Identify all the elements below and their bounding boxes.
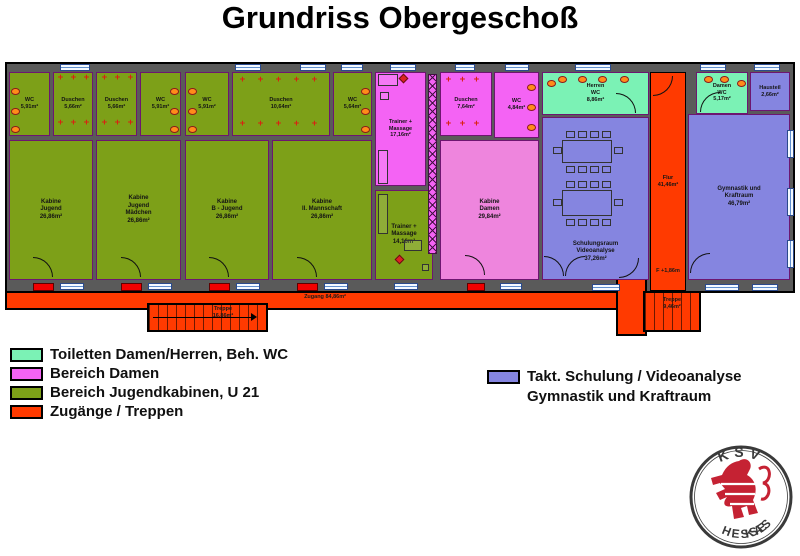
room-kabine-b-jugend: Kabine B - Jugend 26,86m² (185, 140, 269, 280)
floor-plan: WC 5,91m² Duschen 5,66m² Duschen 5,66m² … (0, 0, 800, 556)
window-icon (500, 283, 522, 290)
legend-label: Zugänge / Treppen (50, 403, 183, 420)
toilet-icon (737, 80, 746, 87)
shower-icon (292, 120, 301, 129)
window-icon (324, 283, 348, 290)
room-label: Hausteil 2,66m² (759, 85, 780, 99)
chair-icon (602, 166, 611, 173)
door-threshold (467, 283, 485, 291)
room-label: Trainer + Massage 17,16m² (389, 119, 412, 140)
room-kabine-2-mannschaft: Kabine II. Mannschaft 26,86m² (272, 140, 372, 280)
chair-icon (578, 219, 587, 226)
chair-icon (590, 181, 599, 188)
shower-icon (444, 120, 453, 129)
legend-swatch-olive (10, 386, 43, 400)
club-logo: KSV HESSEN KASSEL (685, 441, 797, 553)
shower-icon (310, 120, 319, 129)
chair-icon (614, 147, 623, 154)
shower-icon (113, 119, 122, 128)
chair-icon (566, 219, 575, 226)
door-threshold (209, 283, 230, 291)
conference-table (562, 190, 612, 216)
window-icon (787, 240, 794, 268)
legend-item-schulung: Takt. Schulung / Videoanalyse (487, 368, 742, 385)
shower-icon (458, 76, 467, 85)
shower-icon (82, 119, 91, 128)
window-icon (592, 284, 620, 291)
shower-icon (69, 74, 78, 83)
window-icon (705, 284, 739, 291)
room-label: Kabine Jugend 26,86m² (40, 199, 62, 222)
shower-icon (113, 74, 122, 83)
toilet-icon (558, 76, 567, 83)
legend-label: Gymnastik und Kraftraum (527, 388, 711, 405)
shower-icon (256, 120, 265, 129)
shower-icon (56, 74, 65, 83)
toilet-icon (527, 84, 536, 91)
door-threshold (297, 283, 318, 291)
chair-icon (602, 181, 611, 188)
club-logo-svg: KSV HESSEN KASSEL (685, 441, 797, 553)
toilet-icon (361, 88, 370, 95)
shower-icon (472, 120, 481, 129)
legend-item-zugaenge: Zugänge / Treppen (10, 403, 183, 420)
window-icon (341, 64, 363, 71)
room-label: Duschen 5,66m² (105, 97, 128, 111)
room-kabine-damen: Kabine Damen 29,84m² (440, 140, 539, 280)
toilet-icon (11, 108, 20, 115)
room-label: Gymnastik und Kraftraum 46,79m² (717, 186, 760, 209)
room-label: WC 5,91m² (198, 97, 215, 111)
room-label: WC 4,84m² (508, 98, 525, 112)
legend-item-gymnastik: Gymnastik und Kraftraum (527, 388, 711, 405)
toilet-icon (720, 76, 729, 83)
toilet-icon (527, 124, 536, 131)
room-label: WC 5,91m² (21, 97, 38, 111)
page: Grundriss Obergeschoß WC 5,91m² Duschen … (0, 0, 800, 556)
chair-icon (553, 199, 562, 206)
window-icon (148, 283, 172, 290)
shower-icon (126, 74, 135, 83)
chair-icon (422, 264, 429, 271)
shower-icon (69, 119, 78, 128)
toilet-icon (620, 76, 629, 83)
corridor-label: Zugang 84,86m² (270, 294, 380, 301)
legend-swatch-mint (10, 348, 43, 362)
chair-icon (614, 199, 623, 206)
legend-item-damen: Bereich Damen (10, 365, 159, 382)
door-threshold (33, 283, 54, 291)
stairs-right-label: Treppe 9,46m² (646, 297, 698, 310)
window-icon (455, 64, 475, 71)
shower-icon (126, 119, 135, 128)
massage-bench-icon (378, 150, 388, 184)
room-label: Duschen 5,66m² (61, 97, 84, 111)
legend-swatch-blue (487, 370, 520, 384)
shower-icon (292, 76, 301, 85)
shower-icon (274, 120, 283, 129)
window-icon (394, 283, 418, 290)
shower-icon (56, 119, 65, 128)
room-flur: Flur 41,46m² (650, 72, 686, 291)
shower-icon (82, 74, 91, 83)
toilet-icon (188, 126, 197, 133)
toilet-icon (188, 88, 197, 95)
legend-item-toiletten: Toiletten Damen/Herren, Beh. WC (10, 346, 288, 363)
window-icon (787, 188, 794, 216)
room-label: Herren WC 8,86m² (587, 83, 605, 104)
chair-icon (578, 166, 587, 173)
shower-icon (472, 76, 481, 85)
toilet-icon (170, 108, 179, 115)
toilet-icon (704, 76, 713, 83)
shower-icon (100, 74, 109, 83)
room-kabine-jugend: Kabine Jugend 26,86m² (9, 140, 93, 280)
toilet-icon (578, 76, 587, 83)
shower-icon (238, 76, 247, 85)
window-icon (575, 64, 611, 71)
window-icon (787, 130, 794, 158)
legend-label: Takt. Schulung / Videoanalyse (527, 368, 742, 385)
desk-icon (378, 74, 398, 86)
locker-strip (428, 74, 437, 254)
chair-icon (578, 131, 587, 138)
window-icon (60, 283, 84, 290)
massage-bench-icon (378, 194, 388, 234)
window-icon (754, 64, 780, 71)
toilet-icon (361, 108, 370, 115)
chair-icon (566, 131, 575, 138)
legend-label: Bereich Damen (50, 365, 159, 382)
room-label: Duschen 7,64m² (454, 97, 477, 111)
toilet-icon (527, 104, 536, 111)
legend-label: Bereich Jugendkabinen, U 21 (50, 384, 259, 401)
chair-icon (602, 131, 611, 138)
room-label: Duschen 10,64m² (269, 97, 292, 111)
window-icon (752, 284, 778, 291)
chair-icon (590, 166, 599, 173)
room-label: WC 5,64m² (344, 97, 361, 111)
chair-icon (590, 219, 599, 226)
window-icon (700, 64, 726, 71)
room-label: Kabine B - Jugend 26,86m² (212, 199, 243, 222)
level-marker: F +1,86m (648, 268, 688, 275)
legend-item-jugend: Bereich Jugendkabinen, U 21 (10, 384, 259, 401)
shower-icon (310, 76, 319, 85)
window-icon (235, 64, 261, 71)
room-label: Kabine Damen 29,84m² (478, 199, 500, 222)
chair-icon (602, 219, 611, 226)
shower-icon (444, 76, 453, 85)
shower-icon (256, 76, 265, 85)
window-icon (60, 64, 90, 71)
room-label: Flur 41,46m² (658, 175, 679, 189)
toilet-icon (598, 76, 607, 83)
legend-label: Toiletten Damen/Herren, Beh. WC (50, 346, 288, 363)
window-icon (300, 64, 326, 71)
room-label: Kabine Jugend Mädchen 26,86m² (125, 195, 151, 225)
stairs-arrow-icon (153, 317, 251, 318)
conference-table (562, 140, 612, 163)
shower-icon (100, 119, 109, 128)
chair-icon (578, 181, 587, 188)
toilet-icon (188, 108, 197, 115)
chair-icon (380, 92, 389, 100)
chair-icon (566, 181, 575, 188)
chair-icon (590, 131, 599, 138)
desk-icon (404, 240, 422, 251)
legend-swatch-orange (10, 405, 43, 419)
toilet-icon (547, 80, 556, 87)
toilet-icon (11, 88, 20, 95)
door-threshold (121, 283, 142, 291)
toilet-icon (361, 126, 370, 133)
shower-icon (274, 76, 283, 85)
toilet-icon (170, 126, 179, 133)
toilet-icon (170, 88, 179, 95)
shower-icon (458, 120, 467, 129)
legend-swatch-pink (10, 367, 43, 381)
room-label: WC 5,91m² (152, 97, 169, 111)
room-hausteil: Hausteil 2,66m² (750, 72, 790, 111)
window-icon (390, 64, 416, 71)
toilet-icon (11, 126, 20, 133)
chair-icon (566, 166, 575, 173)
window-icon (236, 283, 260, 290)
window-icon (505, 64, 529, 71)
chair-icon (553, 147, 562, 154)
room-kabine-jugend-maedchen: Kabine Jugend Mädchen 26,86m² (96, 140, 181, 280)
shower-icon (238, 120, 247, 129)
room-label: Kabine II. Mannschaft 26,86m² (302, 199, 342, 222)
